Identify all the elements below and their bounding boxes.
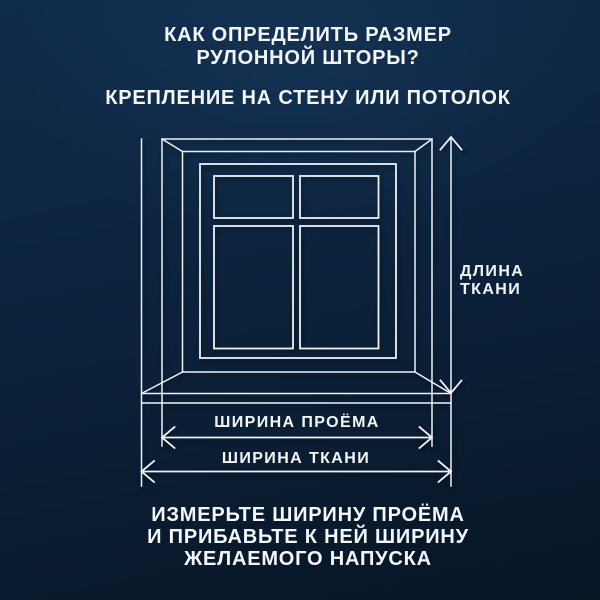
window-pane-top-left [214,176,293,218]
footer-instruction: ИЗМЕРЬТЕ ШИРИНУ ПРОЁМА И ПРИБАВЬТЕ К НЕЙ… [8,505,600,570]
window-pane-bottom-left [214,226,293,349]
window-pane-bottom-right [300,226,379,349]
window-opening-outline [162,139,432,446]
opening-width-label: ШИРИНА ПРОЁМА [162,414,432,432]
window-frame [200,164,396,358]
window-sill [142,394,452,404]
window-recess-outline [183,152,416,373]
fabric-width-label: ШИРИНА ТКАНИ [141,450,451,468]
window-pane-top-right [300,176,379,218]
recess-corner-diagonals [142,139,452,394]
fabric-length-label: ДЛИНА ТКАНИ [460,263,524,298]
infographic-canvas: КАК ОПРЕДЕЛИТЬ РАЗМЕР РУЛОННОЙ ШТОРЫ? КР… [0,0,600,600]
